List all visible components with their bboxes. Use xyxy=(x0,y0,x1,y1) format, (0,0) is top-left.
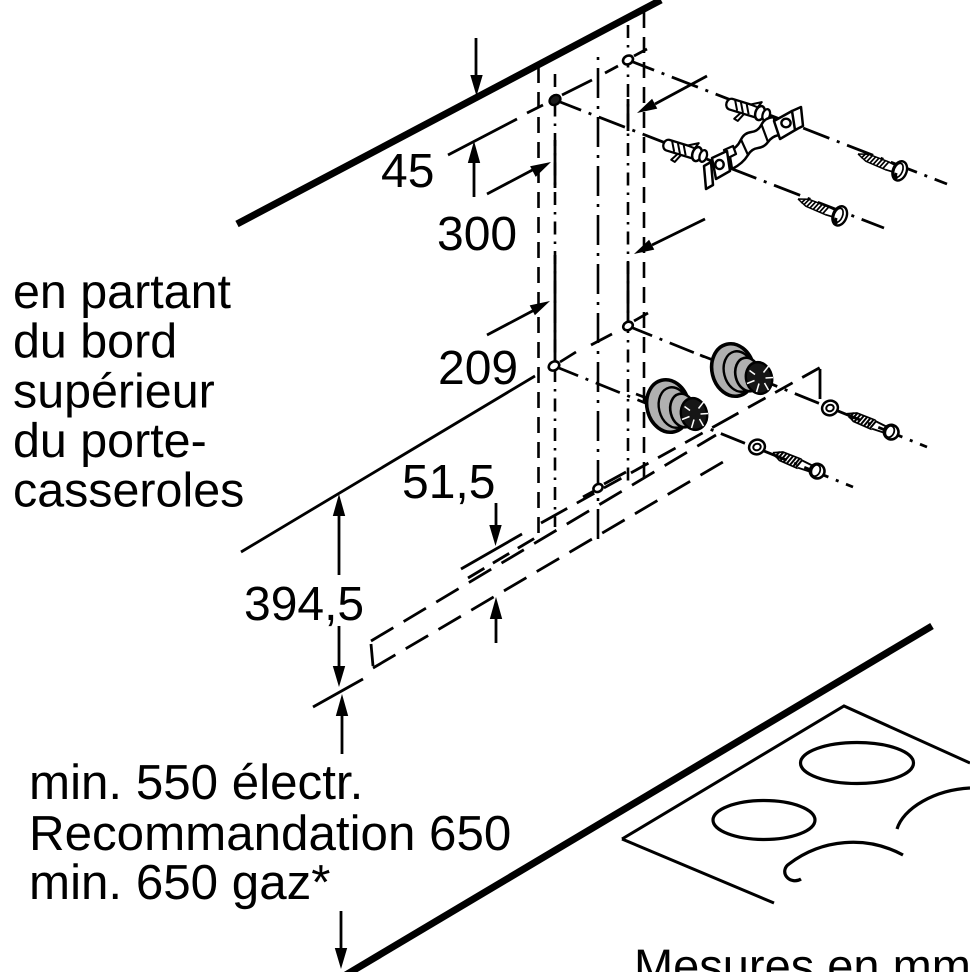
svg-text:45: 45 xyxy=(381,145,434,198)
svg-text:en partant: en partant xyxy=(13,265,231,319)
svg-text:51,5: 51,5 xyxy=(402,456,495,509)
svg-text:du bord: du bord xyxy=(13,314,177,368)
svg-text:min. 550 électr.: min. 550 électr. xyxy=(29,755,363,810)
svg-text:Mesures en mm: Mesures en mm xyxy=(634,939,970,972)
svg-text:supérieur: supérieur xyxy=(13,364,215,418)
svg-text:300: 300 xyxy=(437,208,517,261)
svg-text:du porte-: du porte- xyxy=(13,414,207,468)
svg-text:394,5: 394,5 xyxy=(244,578,364,631)
svg-text:min. 650 gaz*: min. 650 gaz* xyxy=(29,855,330,910)
svg-text:Recommandation 650: Recommandation 650 xyxy=(29,806,511,861)
svg-text:casseroles: casseroles xyxy=(13,463,244,517)
svg-text:209: 209 xyxy=(438,342,518,395)
